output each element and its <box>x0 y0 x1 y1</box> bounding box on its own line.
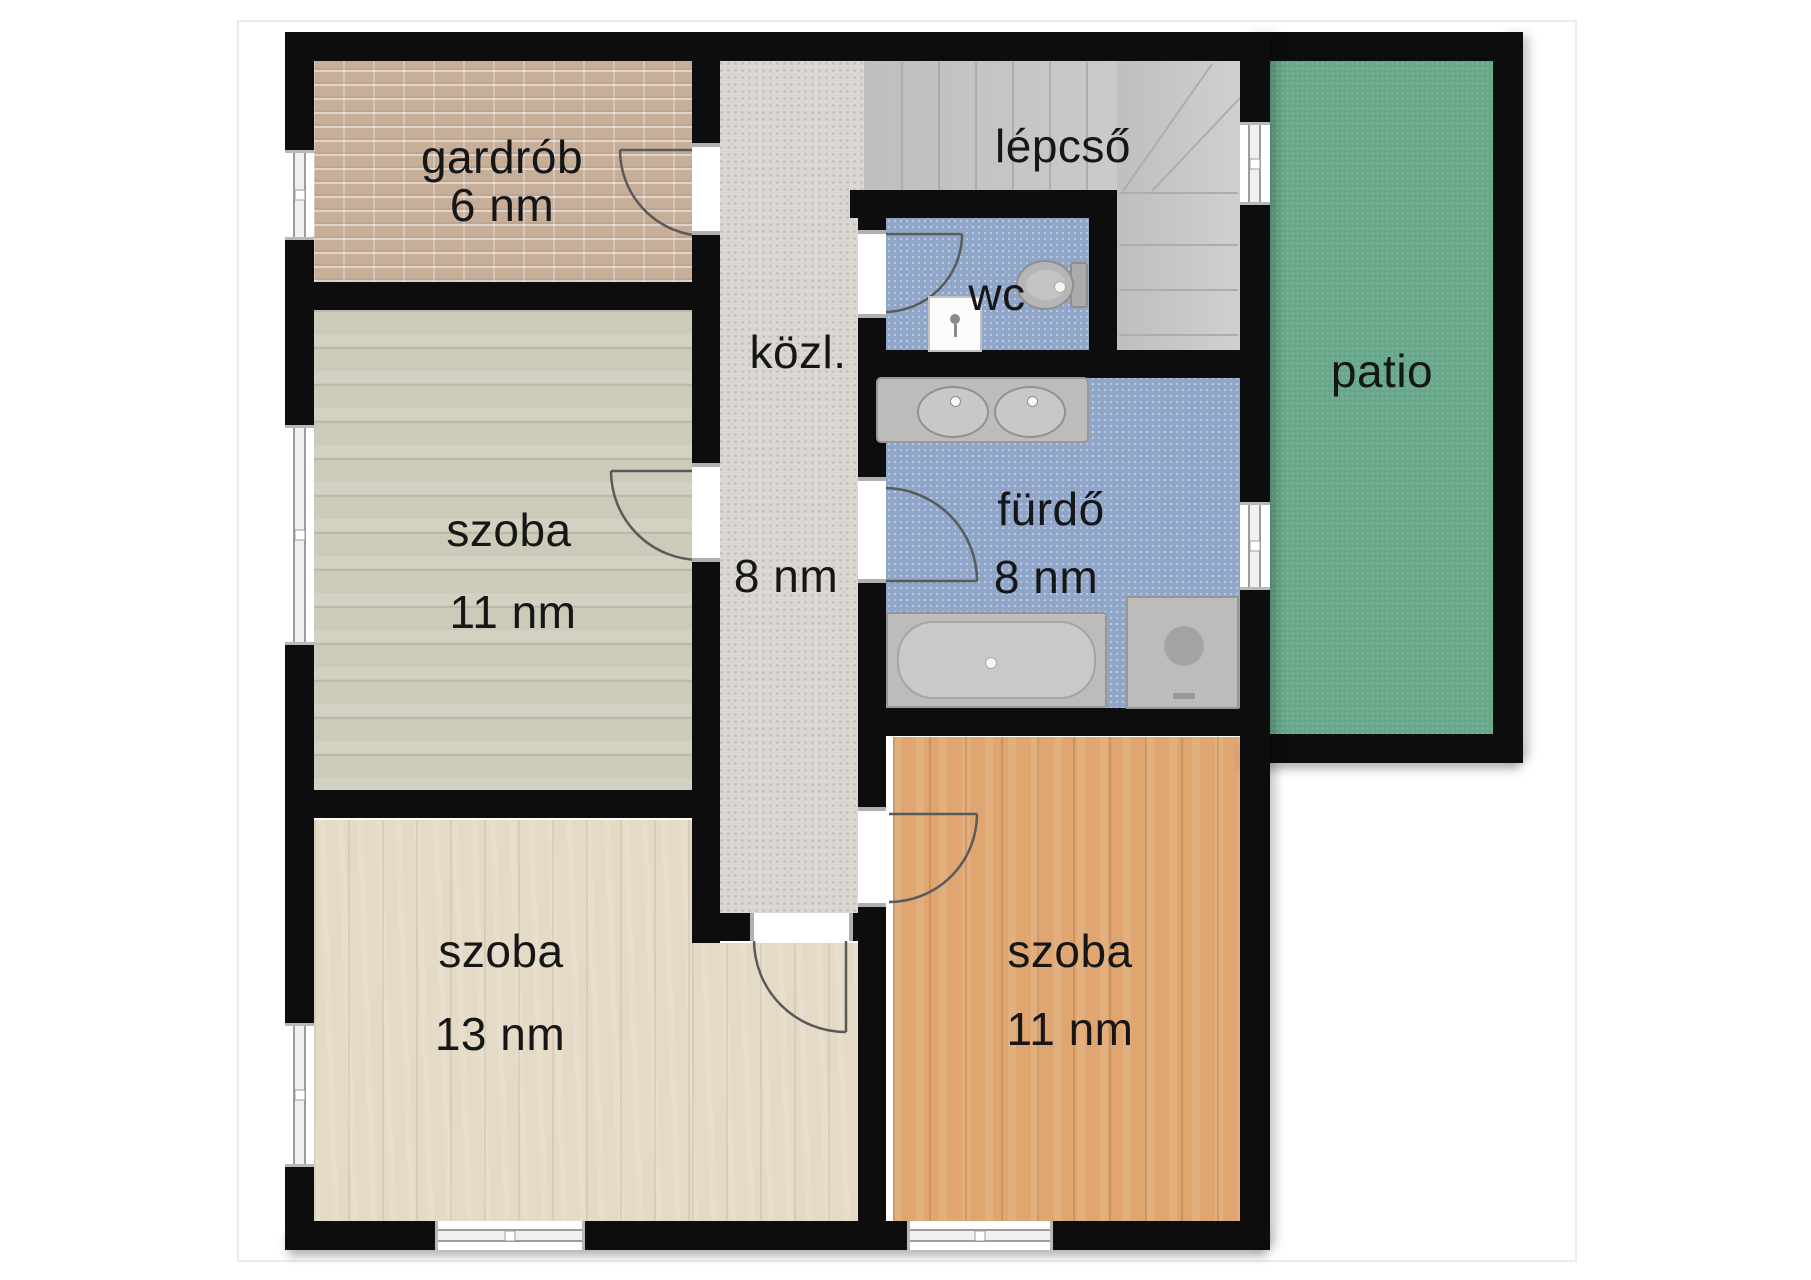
shower-icon <box>1126 596 1239 709</box>
wall-patio-bottom <box>1240 734 1523 763</box>
label-wc-name: wc <box>968 267 1025 321</box>
label-kozl-name: közl. <box>749 325 846 379</box>
room-floor-szoba-11-right <box>893 737 1240 1222</box>
wall-wc-bottom-stairs-bottom <box>858 350 1240 378</box>
window-szoba-left <box>285 425 314 645</box>
wall-patio-east-exterior <box>1493 32 1523 763</box>
wall-szoba-left-bottom <box>285 790 720 818</box>
floor-plan-image: gardrób 6 nm lépcső wc közl. 8 nm fürdő … <box>0 0 1811 1280</box>
label-gardrob-area: 6 nm <box>450 178 554 232</box>
label-szoba-11-right-area: 11 nm <box>1007 1002 1134 1056</box>
bathtub-drain-icon <box>985 657 997 669</box>
window-furdo-patio <box>1240 502 1270 590</box>
label-szoba-left-name: szoba <box>446 503 571 557</box>
room-floor-szoba-13-extension <box>692 943 862 1222</box>
shower-head-icon <box>1164 626 1204 666</box>
label-patio-name: patio <box>1331 344 1433 398</box>
door-gardrob <box>692 143 720 235</box>
wall-patio-west-and-szoba-right-east <box>1240 32 1270 1250</box>
wc-sink-stem <box>954 324 957 337</box>
vanity-sink-left-icon <box>917 386 989 438</box>
wall-bottom-exterior <box>285 1221 1270 1250</box>
wall-corridor-east <box>858 190 886 1222</box>
label-szoba-13-area: 13 nm <box>435 1007 565 1061</box>
door-szoba-left <box>692 463 720 562</box>
window-szoba-11-right-south <box>907 1221 1053 1250</box>
vanity-sink-right-icon <box>994 386 1066 438</box>
door-szoba-13 <box>750 913 853 941</box>
room-floor-corridor <box>718 60 865 913</box>
window-gardrob <box>285 150 314 240</box>
room-floor-patio <box>1270 61 1493 735</box>
label-gardrob-name: gardrób <box>421 130 583 184</box>
wc-sink-tap-icon <box>950 314 960 324</box>
door-furdo <box>858 477 886 583</box>
door-wc <box>858 230 886 318</box>
label-furdo-area: 8 nm <box>994 550 1098 604</box>
label-szoba-left-area: 11 nm <box>450 585 577 639</box>
window-szoba-13-south <box>435 1221 585 1250</box>
door-szoba-11-right <box>858 807 886 907</box>
faucet-dot-icon <box>1027 396 1038 407</box>
window-stairs-patio <box>1240 122 1270 205</box>
toilet-flush-dot <box>1054 281 1066 293</box>
stairs-lower-flight-floor <box>1117 60 1240 378</box>
wall-gardrob-bottom <box>285 282 720 310</box>
vanity-double-sink <box>876 377 1089 443</box>
label-lepcso-name: lépcső <box>995 119 1131 173</box>
faucet-dot-icon <box>950 396 961 407</box>
wall-top-exterior <box>285 32 1523 61</box>
bathtub-icon <box>886 612 1107 708</box>
label-kozl-area: 8 nm <box>734 549 838 603</box>
shower-tap-icon <box>1173 693 1195 699</box>
window-szoba-13-west <box>285 1023 314 1167</box>
label-szoba-11-right-name: szoba <box>1007 924 1132 978</box>
label-szoba-13-name: szoba <box>438 924 563 978</box>
wall-wc-top <box>850 190 1117 218</box>
wall-furdo-bottom <box>858 708 1240 736</box>
label-furdo-name: fürdő <box>997 482 1104 536</box>
